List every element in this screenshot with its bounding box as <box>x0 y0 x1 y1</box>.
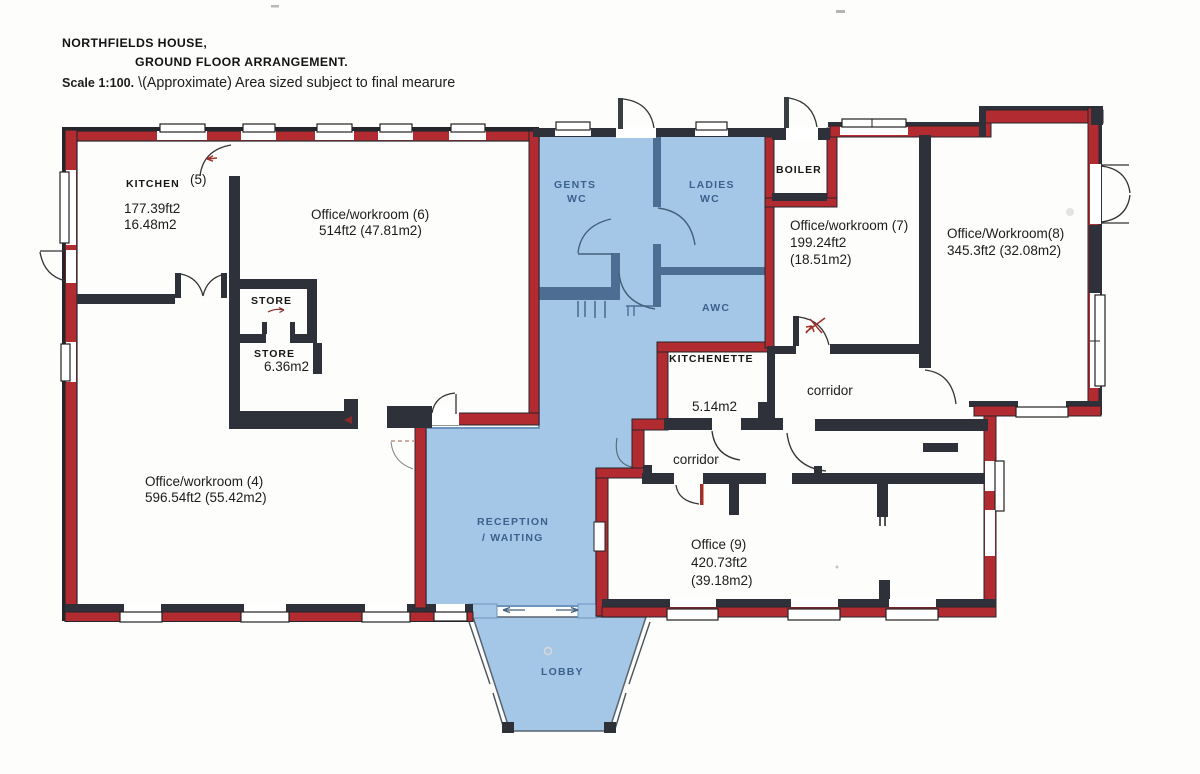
svg-text:Office/workroom (6): Office/workroom (6) <box>311 207 429 222</box>
svg-text:WC: WC <box>700 193 720 205</box>
svg-text:STORE: STORE <box>251 295 292 307</box>
svg-text:(18.51m2): (18.51m2) <box>790 252 852 267</box>
svg-text:5.14m2: 5.14m2 <box>692 399 737 414</box>
svg-text:Office/workroom (4): Office/workroom (4) <box>145 474 263 489</box>
svg-text:Office/workroom (7): Office/workroom (7) <box>790 218 908 233</box>
svg-text:WC: WC <box>567 193 587 205</box>
svg-text:KITCHEN: KITCHEN <box>126 178 180 190</box>
svg-text:177.39ft2: 177.39ft2 <box>124 201 180 216</box>
svg-text:514ft2 (47.81m2): 514ft2 (47.81m2) <box>319 223 422 238</box>
svg-text:596.54ft2 (55.42m2): 596.54ft2 (55.42m2) <box>145 490 267 505</box>
svg-text:LADIES: LADIES <box>689 179 735 191</box>
svg-text:345.3ft2 (32.08m2): 345.3ft2 (32.08m2) <box>947 243 1061 258</box>
svg-text:16.48m2: 16.48m2 <box>124 217 177 232</box>
svg-text:corridor: corridor <box>673 452 719 467</box>
svg-text:RECEPTION: RECEPTION <box>477 516 549 528</box>
svg-text:GENTS: GENTS <box>554 179 596 191</box>
svg-text:Office (9): Office (9) <box>691 537 746 552</box>
svg-text:Office/Workroom(8): Office/Workroom(8) <box>947 226 1064 241</box>
svg-text:(5): (5) <box>190 172 207 187</box>
svg-text:GROUND FLOOR ARRANGEMENT.: GROUND FLOOR ARRANGEMENT. <box>135 55 348 69</box>
svg-text:AWC: AWC <box>702 302 730 314</box>
svg-text:Scale 1:100. \(Approximate) Ar: Scale 1:100. \(Approximate) Area sized s… <box>62 75 455 91</box>
svg-text:KITCHENETTE: KITCHENETTE <box>669 353 754 365</box>
svg-text:LOBBY: LOBBY <box>541 666 584 678</box>
svg-text:/ WAITING: / WAITING <box>482 532 544 544</box>
svg-text:NORTHFIELDS HOUSE,: NORTHFIELDS HOUSE, <box>62 36 207 50</box>
svg-text:199.24ft2: 199.24ft2 <box>790 235 846 250</box>
svg-text:corridor: corridor <box>807 383 853 398</box>
svg-text:BOILER: BOILER <box>776 164 822 176</box>
svg-text:6.36m2: 6.36m2 <box>264 359 309 374</box>
svg-text:420.73ft2: 420.73ft2 <box>691 555 747 570</box>
svg-text:(39.18m2): (39.18m2) <box>691 573 753 588</box>
